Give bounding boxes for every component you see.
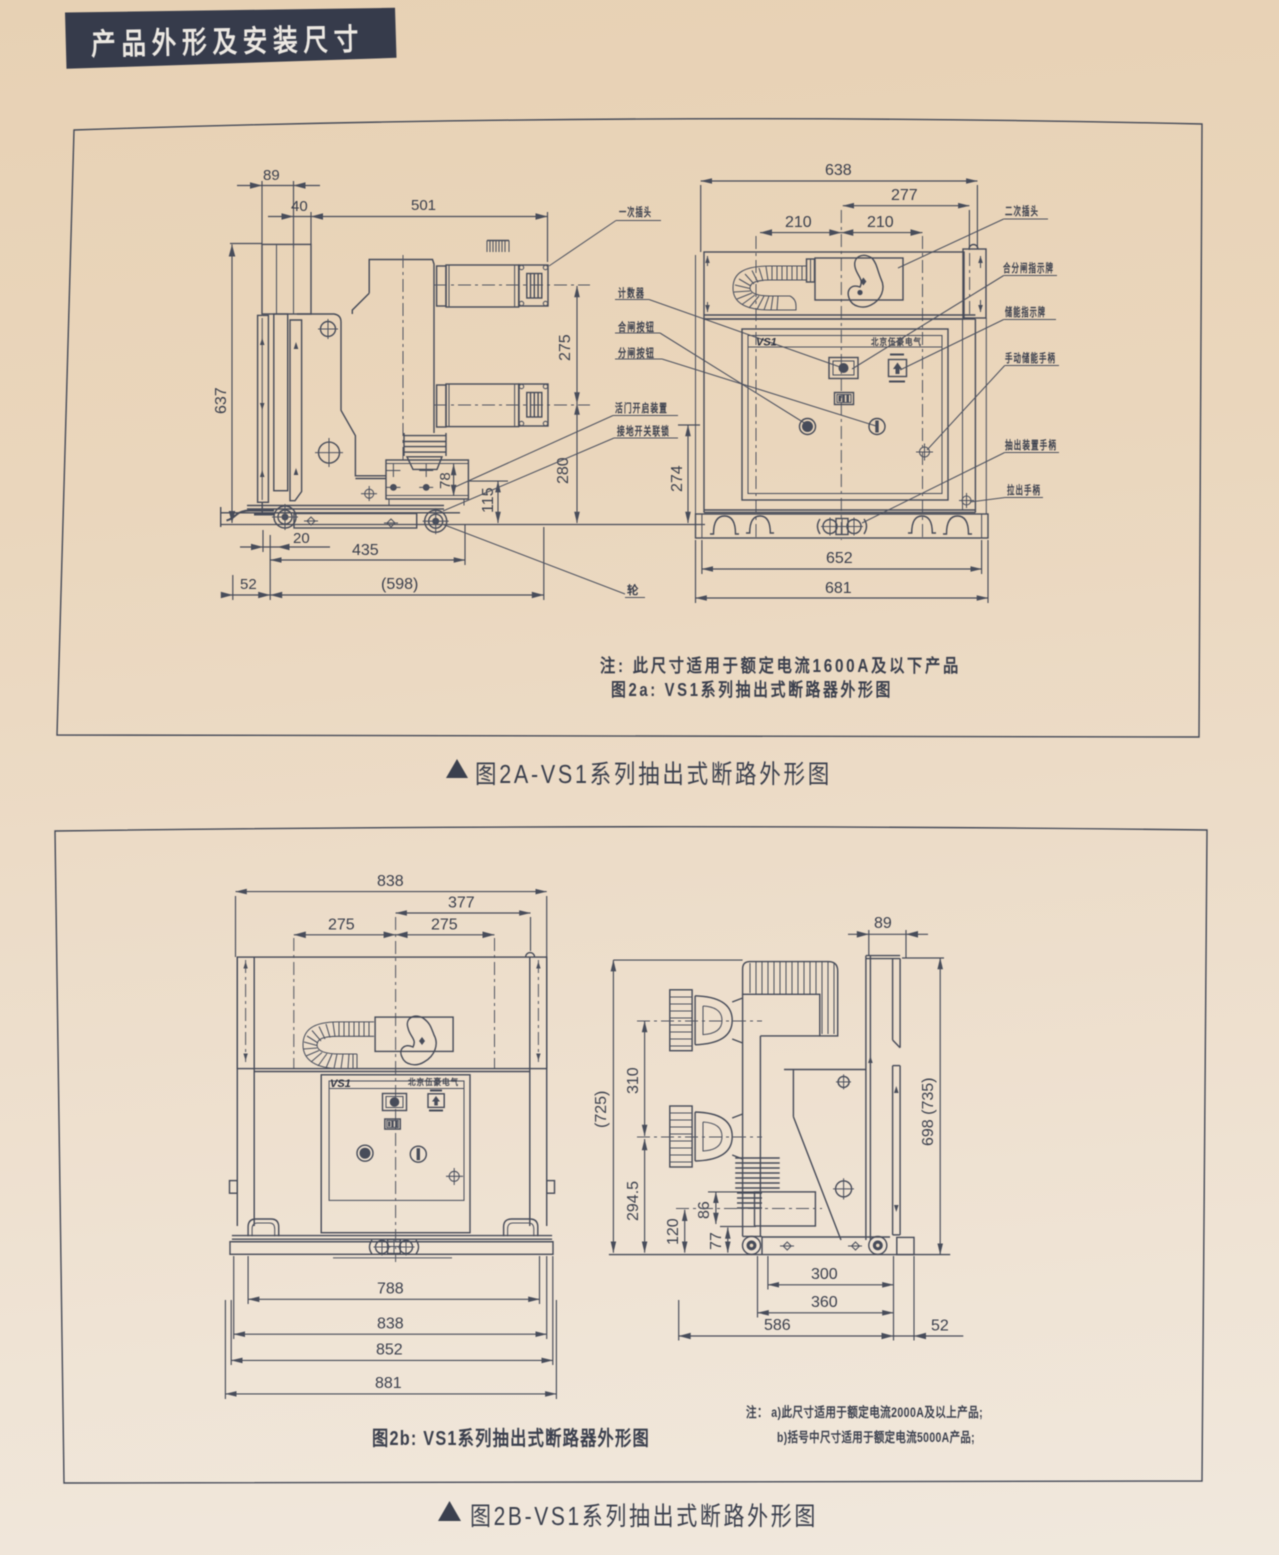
svg-text:77: 77 [708,1232,725,1250]
svg-text:图2A-VS1系列抽出式断路外形图: 图2A-VS1系列抽出式断路外形图 [475,761,832,789]
svg-text:300: 300 [811,1266,838,1283]
svg-text:652: 652 [826,550,853,567]
svg-text:活门开启装置: 活门开启装置 [615,401,668,415]
svg-text:277: 277 [891,187,918,204]
svg-text:(725): (725) [593,1091,610,1128]
svg-text:78: 78 [437,472,454,489]
svg-text:852: 852 [376,1342,403,1359]
svg-text:360: 360 [811,1294,838,1311]
svg-text:拉出手柄: 拉出手柄 [1007,483,1041,497]
svg-text:VS1: VS1 [330,1078,351,1090]
svg-text:681: 681 [825,580,852,597]
svg-text:(598): (598) [381,576,418,593]
svg-text:52: 52 [240,576,257,593]
svg-text:881: 881 [375,1375,402,1392]
svg-text:294.5: 294.5 [625,1181,642,1221]
svg-text:586: 586 [764,1317,791,1334]
svg-text:838: 838 [377,873,404,890]
svg-text:275: 275 [431,916,458,933]
svg-text:合分闸指示牌: 合分闸指示牌 [1003,261,1054,275]
svg-text:698 (735): 698 (735) [920,1078,937,1147]
svg-text:图2B-VS1系列抽出式断路外形图: 图2B-VS1系列抽出式断路外形图 [470,1503,818,1531]
svg-text:分闸按钮: 分闸按钮 [618,346,655,360]
svg-text:二次插头: 二次插头 [1005,204,1039,218]
svg-text:轮: 轮 [627,583,640,597]
svg-text:40: 40 [291,198,308,215]
svg-text:合闸按钮: 合闸按钮 [618,320,655,334]
svg-text:52: 52 [931,1318,949,1335]
svg-text:20: 20 [293,530,310,547]
svg-text:86: 86 [696,1201,713,1219]
svg-text:图2a: VS1系列抽出式断路器外形图: 图2a: VS1系列抽出式断路器外形图 [611,679,893,700]
svg-text:产品外形及安装尺寸: 产品外形及安装尺寸 [91,23,365,61]
svg-text:501: 501 [411,197,436,214]
svg-text:注： a)此尺寸适用于额定电流2000A及以上产品;: 注： a)此尺寸适用于额定电流2000A及以上产品; [746,1404,983,1420]
svg-text:89: 89 [263,167,280,184]
svg-text:310: 310 [625,1067,642,1094]
svg-text:280: 280 [555,457,572,484]
svg-text:手动储能手柄: 手动储能手柄 [1005,351,1056,365]
svg-text:637: 637 [213,387,230,414]
svg-text:89: 89 [874,915,892,932]
svg-text:788: 788 [377,1281,404,1298]
svg-text:120: 120 [665,1218,682,1245]
svg-text:210: 210 [867,214,894,231]
svg-text:储能指示牌: 储能指示牌 [1005,305,1046,319]
svg-text:计数器: 计数器 [618,286,645,300]
svg-text:275: 275 [557,334,574,361]
svg-text:275: 275 [328,916,355,933]
svg-text:435: 435 [352,542,379,559]
svg-text:VS1: VS1 [756,337,777,349]
svg-text:210: 210 [785,214,812,231]
svg-text:接地开关联锁: 接地开关联锁 [617,424,670,438]
svg-text:注: 此尺寸适用于额定电流1600A及以下产品: 注: 此尺寸适用于额定电流1600A及以下产品 [600,655,961,676]
svg-text:638: 638 [825,162,852,179]
svg-text:抽出装置手柄: 抽出装置手柄 [1005,438,1057,452]
svg-text:b)括号中尺寸适用于额定电流5000A产品;: b)括号中尺寸适用于额定电流5000A产品; [777,1429,975,1445]
svg-text:图2b: VS1系列抽出式断路器外形图: 图2b: VS1系列抽出式断路器外形图 [372,1426,650,1450]
svg-text:377: 377 [448,895,475,912]
svg-text:北京伍豪电气: 北京伍豪电气 [408,1077,459,1087]
svg-text:一次插头: 一次插头 [619,205,652,219]
svg-text:274: 274 [669,465,686,492]
svg-text:838: 838 [377,1316,404,1333]
